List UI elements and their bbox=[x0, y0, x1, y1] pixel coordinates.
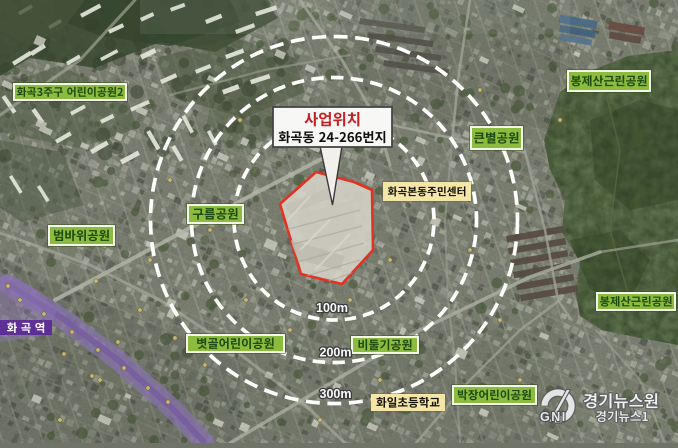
svg-text:100m: 100m bbox=[316, 301, 348, 315]
svg-text:200m: 200m bbox=[320, 346, 352, 360]
svg-text:300m: 300m bbox=[320, 387, 352, 401]
svg-text:GNI: GNI bbox=[540, 410, 567, 424]
